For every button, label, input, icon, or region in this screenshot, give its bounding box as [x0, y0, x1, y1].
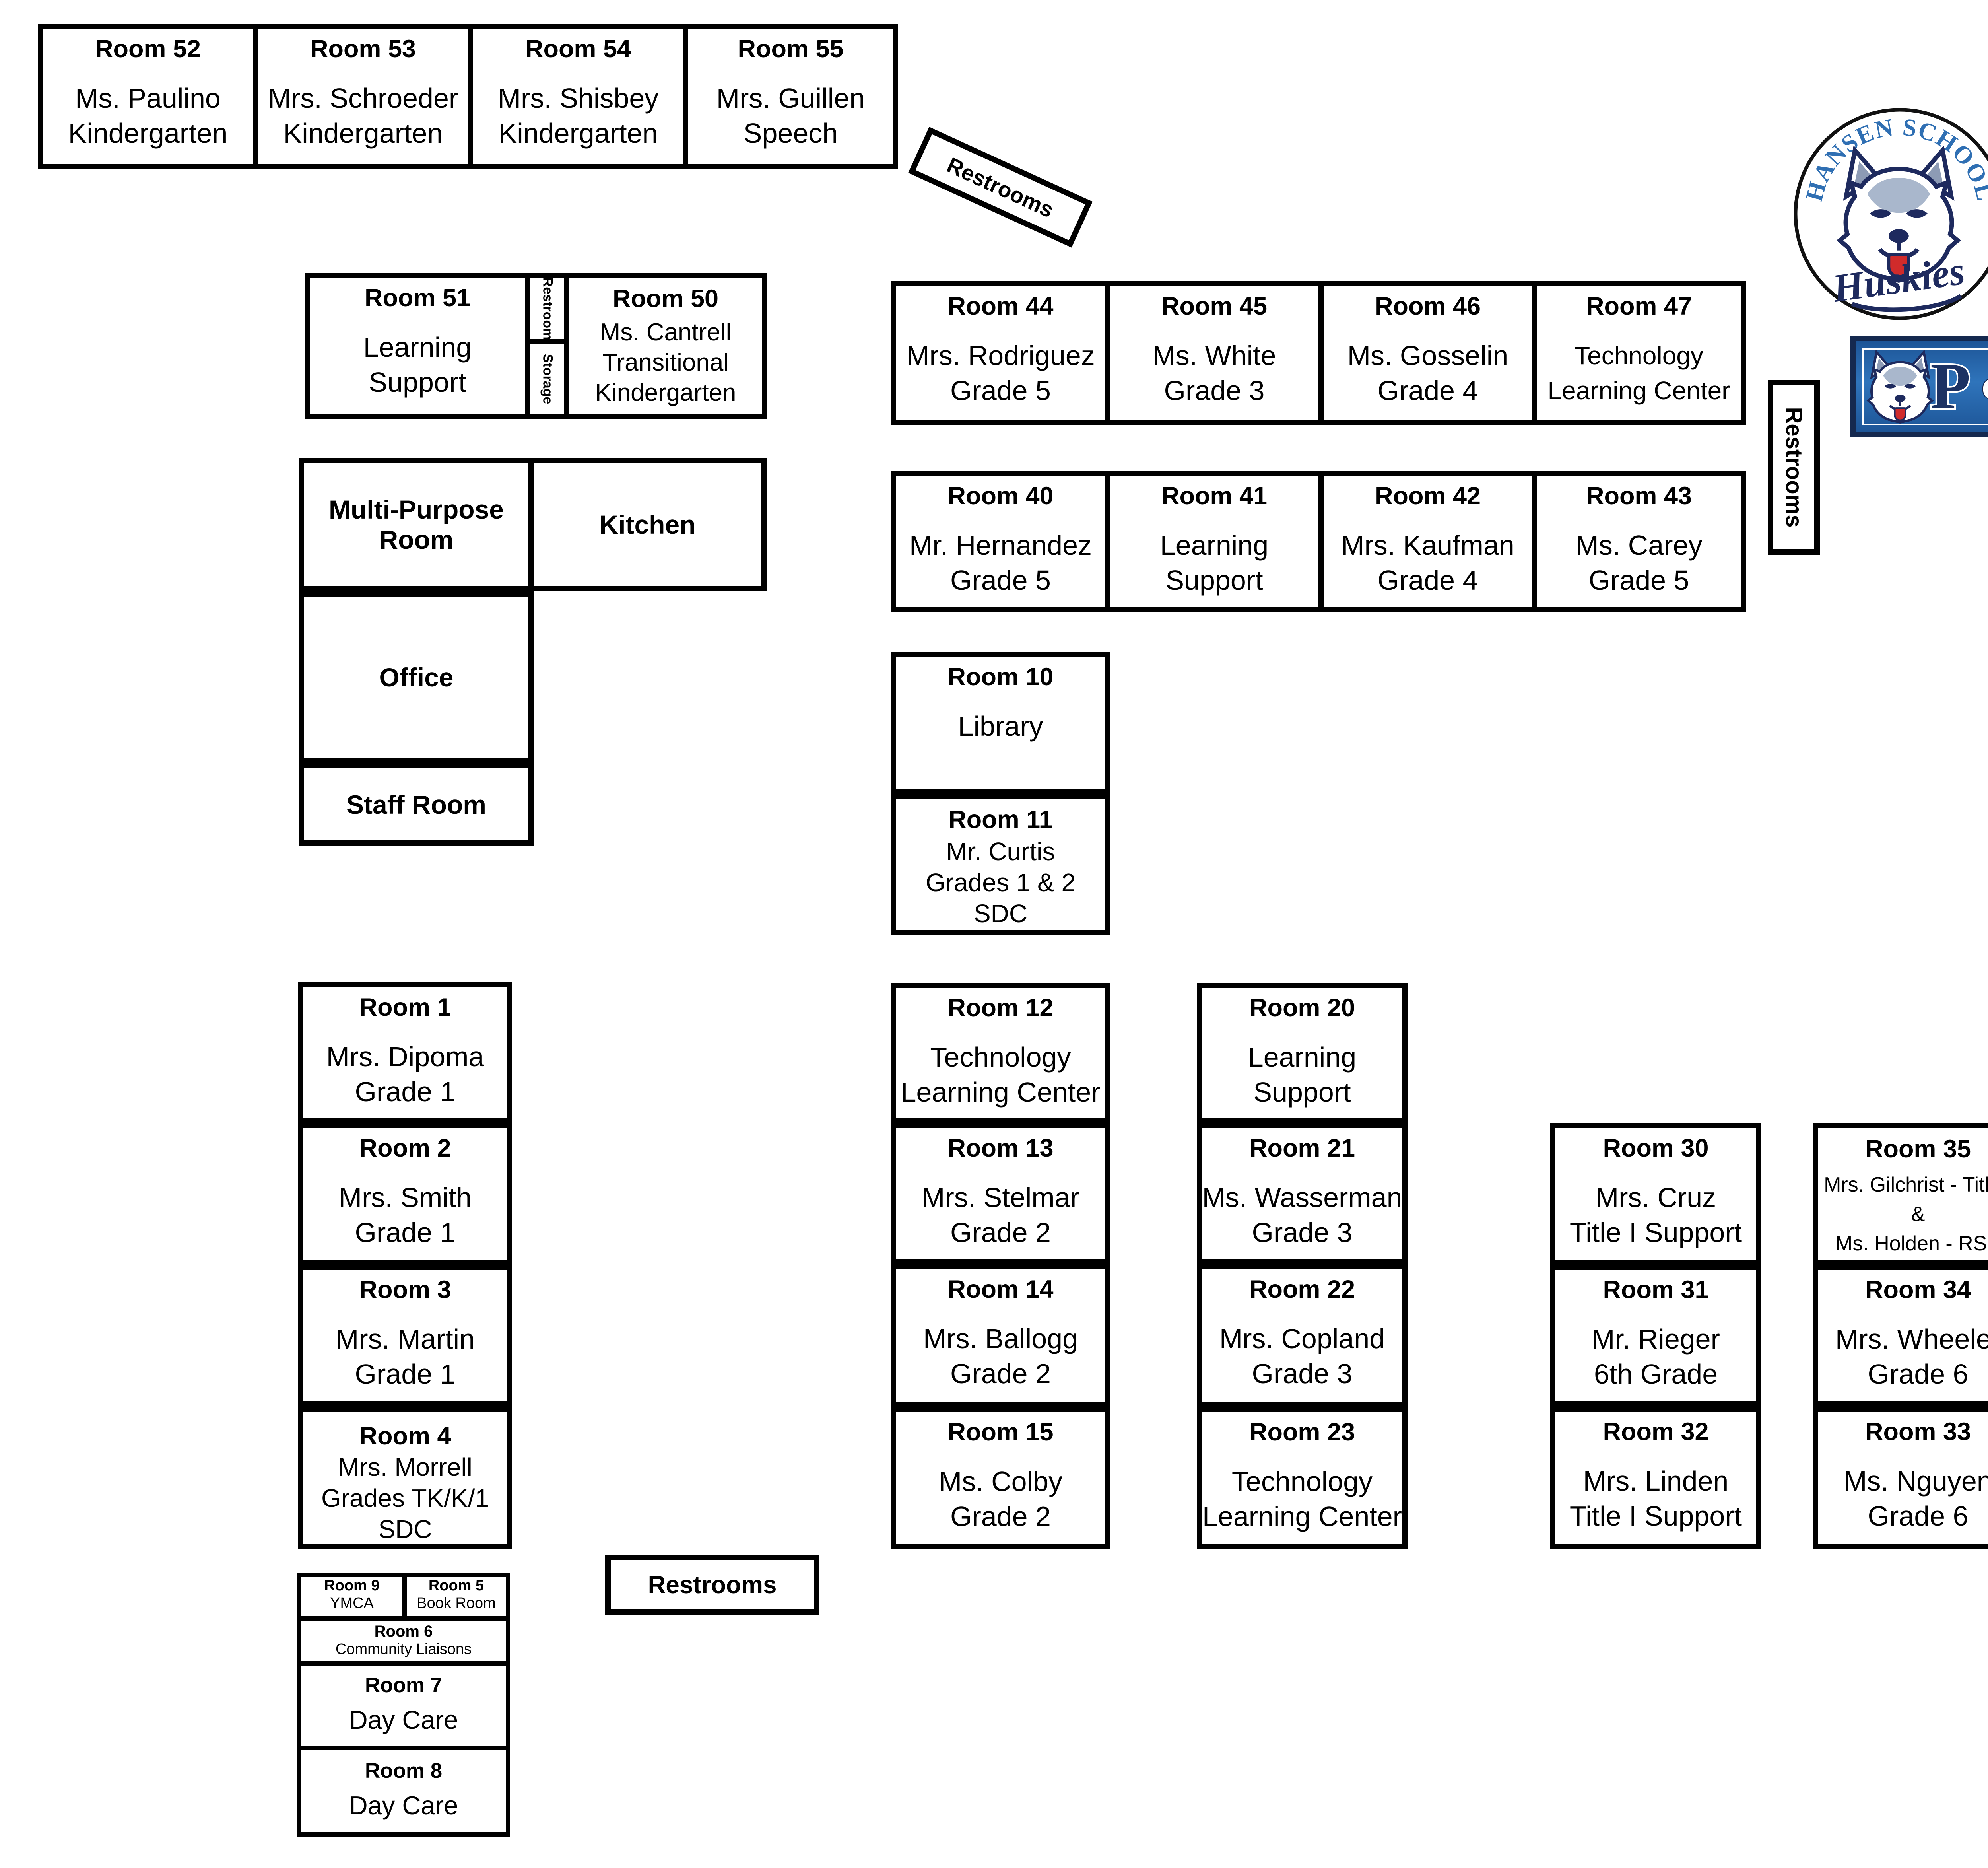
svg-text:olite: olite	[1982, 365, 1988, 407]
svg-text:P: P	[1930, 350, 1971, 422]
